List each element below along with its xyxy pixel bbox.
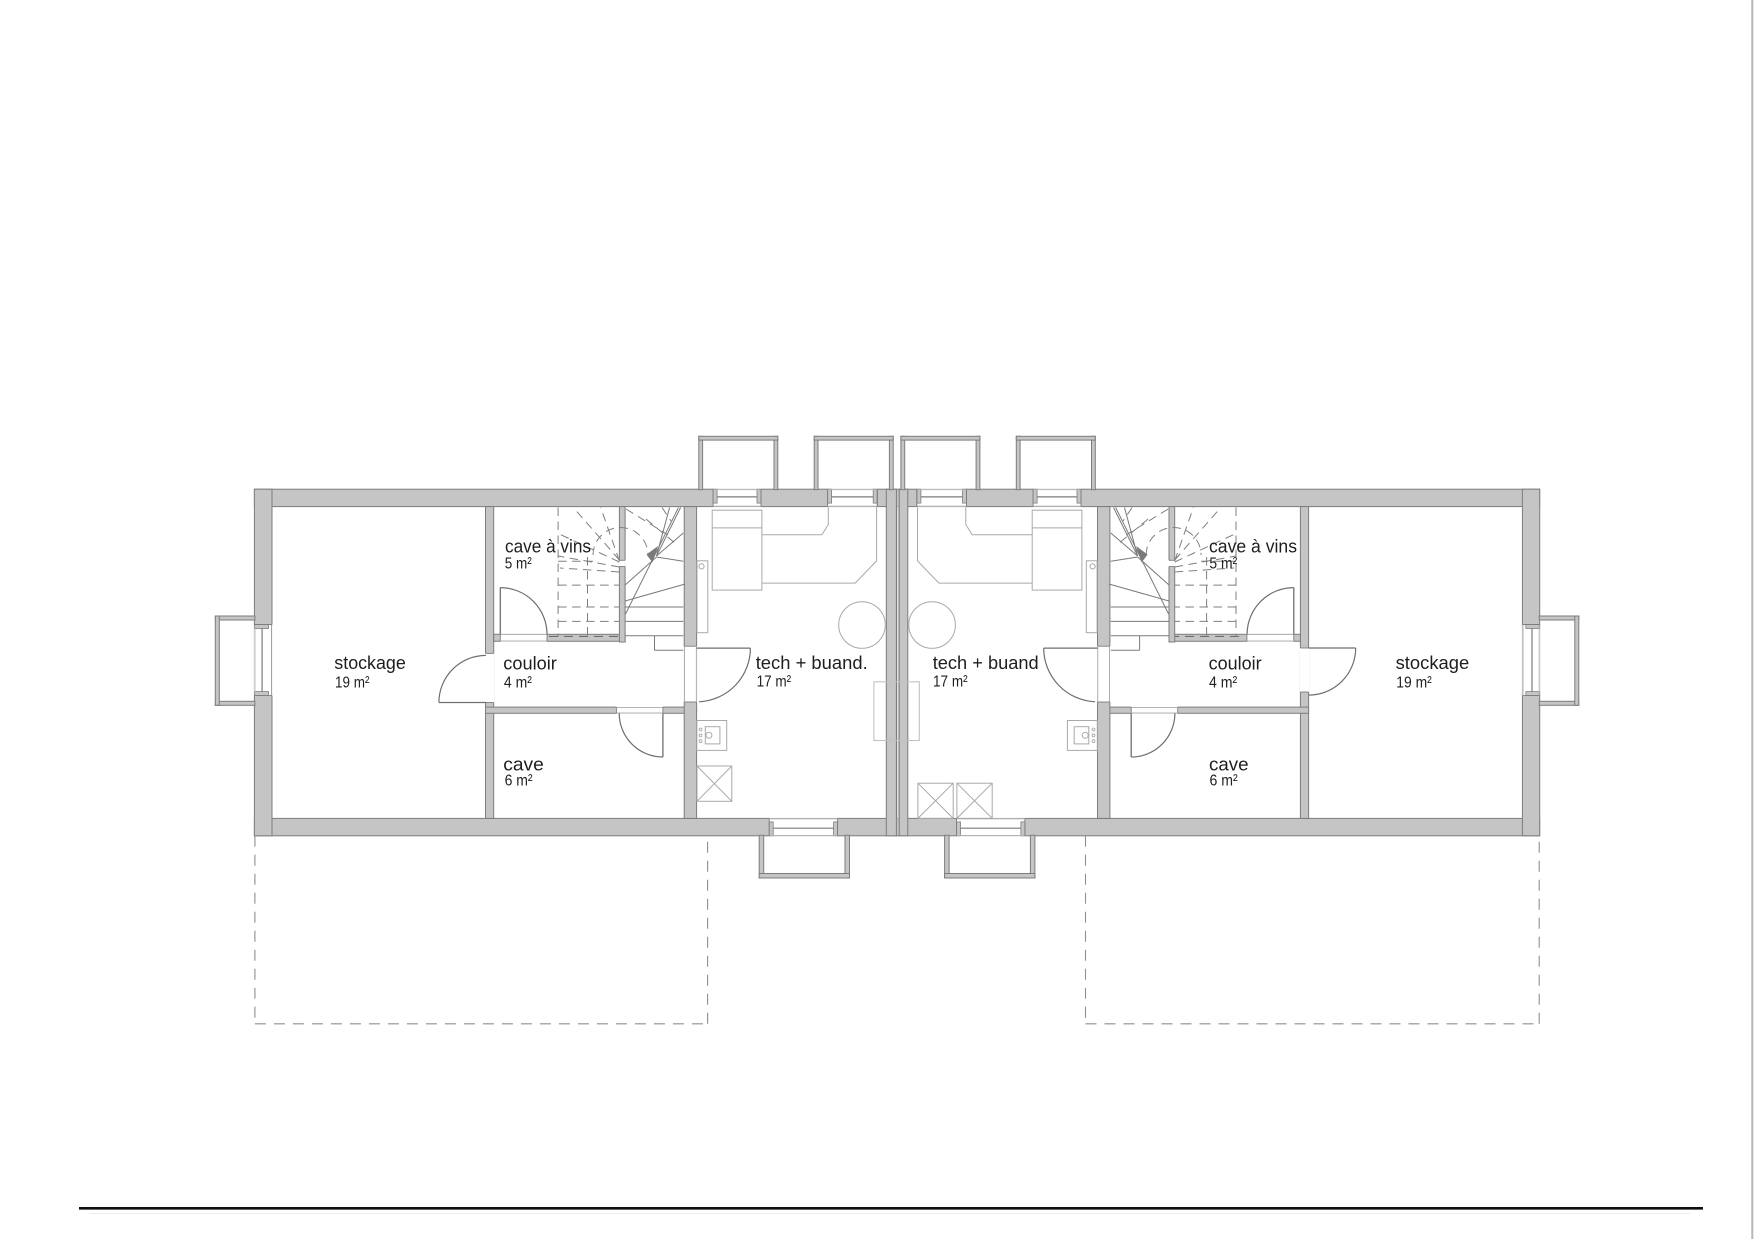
svg-text:stockage: stockage	[334, 652, 406, 673]
svg-text:17 m²: 17 m²	[757, 674, 792, 691]
svg-text:5 m²: 5 m²	[505, 556, 533, 573]
svg-text:cave à vins: cave à vins	[505, 535, 591, 556]
svg-text:tech + buand.: tech + buand.	[756, 652, 868, 673]
svg-text:17 m²: 17 m²	[933, 674, 968, 691]
svg-text:4 m²: 4 m²	[1209, 675, 1238, 692]
svg-text:couloir: couloir	[503, 652, 557, 673]
svg-text:6 m²: 6 m²	[1210, 773, 1239, 790]
svg-text:stockage: stockage	[1396, 652, 1470, 673]
svg-text:4 m²: 4 m²	[504, 675, 533, 692]
svg-text:cave: cave	[503, 753, 544, 774]
svg-text:5 m²: 5 m²	[1209, 556, 1237, 573]
svg-text:19 m²: 19 m²	[335, 674, 370, 691]
svg-text:cave: cave	[1209, 753, 1249, 774]
svg-text:6 m²: 6 m²	[505, 773, 534, 790]
svg-text:tech + buand: tech + buand	[933, 652, 1039, 673]
svg-text:19 m²: 19 m²	[1396, 674, 1432, 691]
svg-text:cave à vins: cave à vins	[1209, 535, 1297, 556]
svg-text:couloir: couloir	[1209, 652, 1262, 673]
